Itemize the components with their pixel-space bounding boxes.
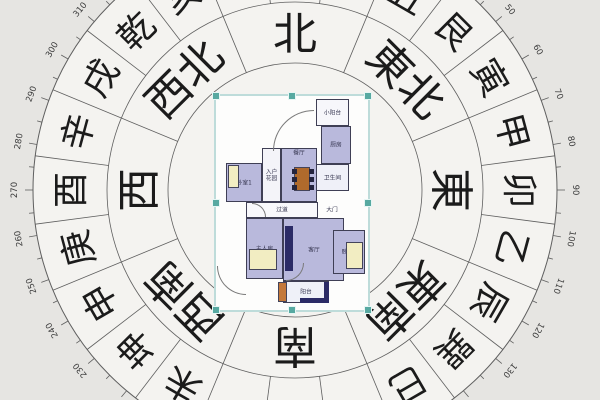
room-label-main-door: 大门	[326, 207, 337, 214]
compass-divider	[548, 121, 553, 122]
dining-chair	[309, 177, 314, 182]
compass-divider	[41, 280, 49, 283]
compass-degree-label: 80	[565, 135, 577, 147]
compass-divider	[61, 55, 68, 59]
compass-degree-label: 90	[570, 185, 580, 196]
compass-divider	[480, 1, 484, 5]
dining-chair	[292, 169, 297, 174]
compass-divider	[106, 1, 110, 5]
compass-divider	[496, 358, 502, 363]
compass-degree-label: 260	[13, 230, 26, 248]
selection-handle[interactable]	[364, 306, 372, 314]
room-label-bathroom: 卫生间	[324, 174, 341, 181]
compass-divider	[541, 98, 549, 101]
compass-divider	[29, 235, 37, 236]
room-label-balcony: 阳台	[300, 289, 311, 296]
compass-divider	[548, 258, 553, 259]
compass-divider	[41, 98, 49, 101]
compass-degree-label: 250	[24, 276, 39, 295]
compass-divider	[37, 121, 42, 122]
mountain-label: 酉	[51, 172, 92, 208]
dining-chair	[309, 169, 314, 174]
compass-divider	[553, 143, 561, 144]
room-kitchen: 厨房	[321, 126, 351, 164]
balcony-window-bottom	[300, 298, 329, 303]
compass-divider	[510, 37, 514, 40]
selection-handle[interactable]	[364, 199, 372, 207]
compass-degree-label: 50	[502, 3, 517, 18]
selection-handle[interactable]	[288, 92, 296, 100]
compass-divider	[88, 358, 94, 363]
compass-divider	[541, 280, 549, 283]
compass-degree-label: 290	[24, 85, 39, 104]
dining-chair	[292, 177, 297, 182]
compass-degree-label: 280	[13, 133, 26, 151]
compass-degree-label: 130	[500, 361, 518, 380]
compass-divider	[61, 321, 68, 325]
compass-divider	[510, 340, 514, 343]
compass-divider	[496, 16, 502, 21]
bed-bedroom2	[346, 242, 363, 269]
canvas: 5060708090100110120130230240250260270280…	[0, 0, 600, 400]
compass-divider	[480, 375, 484, 379]
dining-chair	[309, 185, 314, 190]
room-label-entry-garden: 入户花园	[265, 168, 279, 181]
room-label-kitchen: 厨房	[330, 142, 341, 149]
washing-machine	[278, 282, 287, 302]
room-label-hallway: 过道	[276, 207, 287, 214]
compass-degree-label: 100	[564, 230, 577, 248]
compass-divider	[53, 77, 58, 79]
floorplan-selection[interactable]: 小阳台厨房卫生间餐厅入户花园卧室1过道大门主人房客厅卧室2阳台	[216, 96, 368, 310]
door-arc	[273, 110, 314, 151]
room-small-balcony: 小阳台	[316, 99, 349, 126]
selection-handle[interactable]	[212, 306, 220, 314]
selection-handle[interactable]	[212, 199, 220, 207]
compass-degree-label: 110	[551, 276, 566, 295]
dining-chair	[292, 185, 297, 190]
compass-degree-label: 310	[71, 1, 89, 20]
bed-master	[249, 249, 277, 270]
selection-handle[interactable]	[212, 92, 220, 100]
compass-degree-label: 270	[10, 182, 20, 198]
direction-label: 東	[425, 168, 476, 212]
compass-divider	[532, 301, 537, 303]
compass-divider	[522, 55, 529, 59]
room-entry-garden: 入户花园	[262, 148, 281, 202]
room-label-small-balcony: 小阳台	[324, 109, 341, 116]
compass-divider	[76, 340, 80, 343]
door-arc	[217, 266, 246, 295]
room-main-door: 大门	[320, 202, 344, 218]
compass-divider	[88, 16, 94, 21]
compass-divider	[106, 375, 110, 379]
compass-degree-label: 230	[71, 361, 89, 380]
direction-label: 北	[273, 9, 317, 60]
compass-divider	[522, 321, 529, 325]
room-label-living-room: 客厅	[308, 246, 319, 253]
compass-divider	[37, 258, 42, 259]
compass-degree-label: 120	[529, 320, 546, 339]
direction-label: 西	[114, 168, 165, 212]
direction-label: 南	[273, 320, 317, 371]
room-bathroom: 卫生间	[316, 164, 349, 191]
compass-degree-label: 60	[530, 43, 544, 57]
compass-degree-label: 300	[44, 40, 61, 59]
mountain-label: 卯	[498, 172, 539, 208]
selection-handle[interactable]	[288, 306, 296, 314]
compass-degree-label: 240	[44, 320, 61, 339]
compass-divider	[553, 235, 561, 236]
compass-degree-label: 70	[552, 87, 565, 101]
compass-divider	[463, 391, 468, 397]
compass-divider	[76, 37, 80, 40]
selection-handle[interactable]	[364, 92, 372, 100]
compass-divider	[121, 391, 126, 397]
compass-divider	[53, 301, 58, 303]
compass-divider	[532, 77, 537, 79]
wardrobe-bedroom1	[228, 165, 239, 188]
compass-divider	[29, 143, 37, 144]
